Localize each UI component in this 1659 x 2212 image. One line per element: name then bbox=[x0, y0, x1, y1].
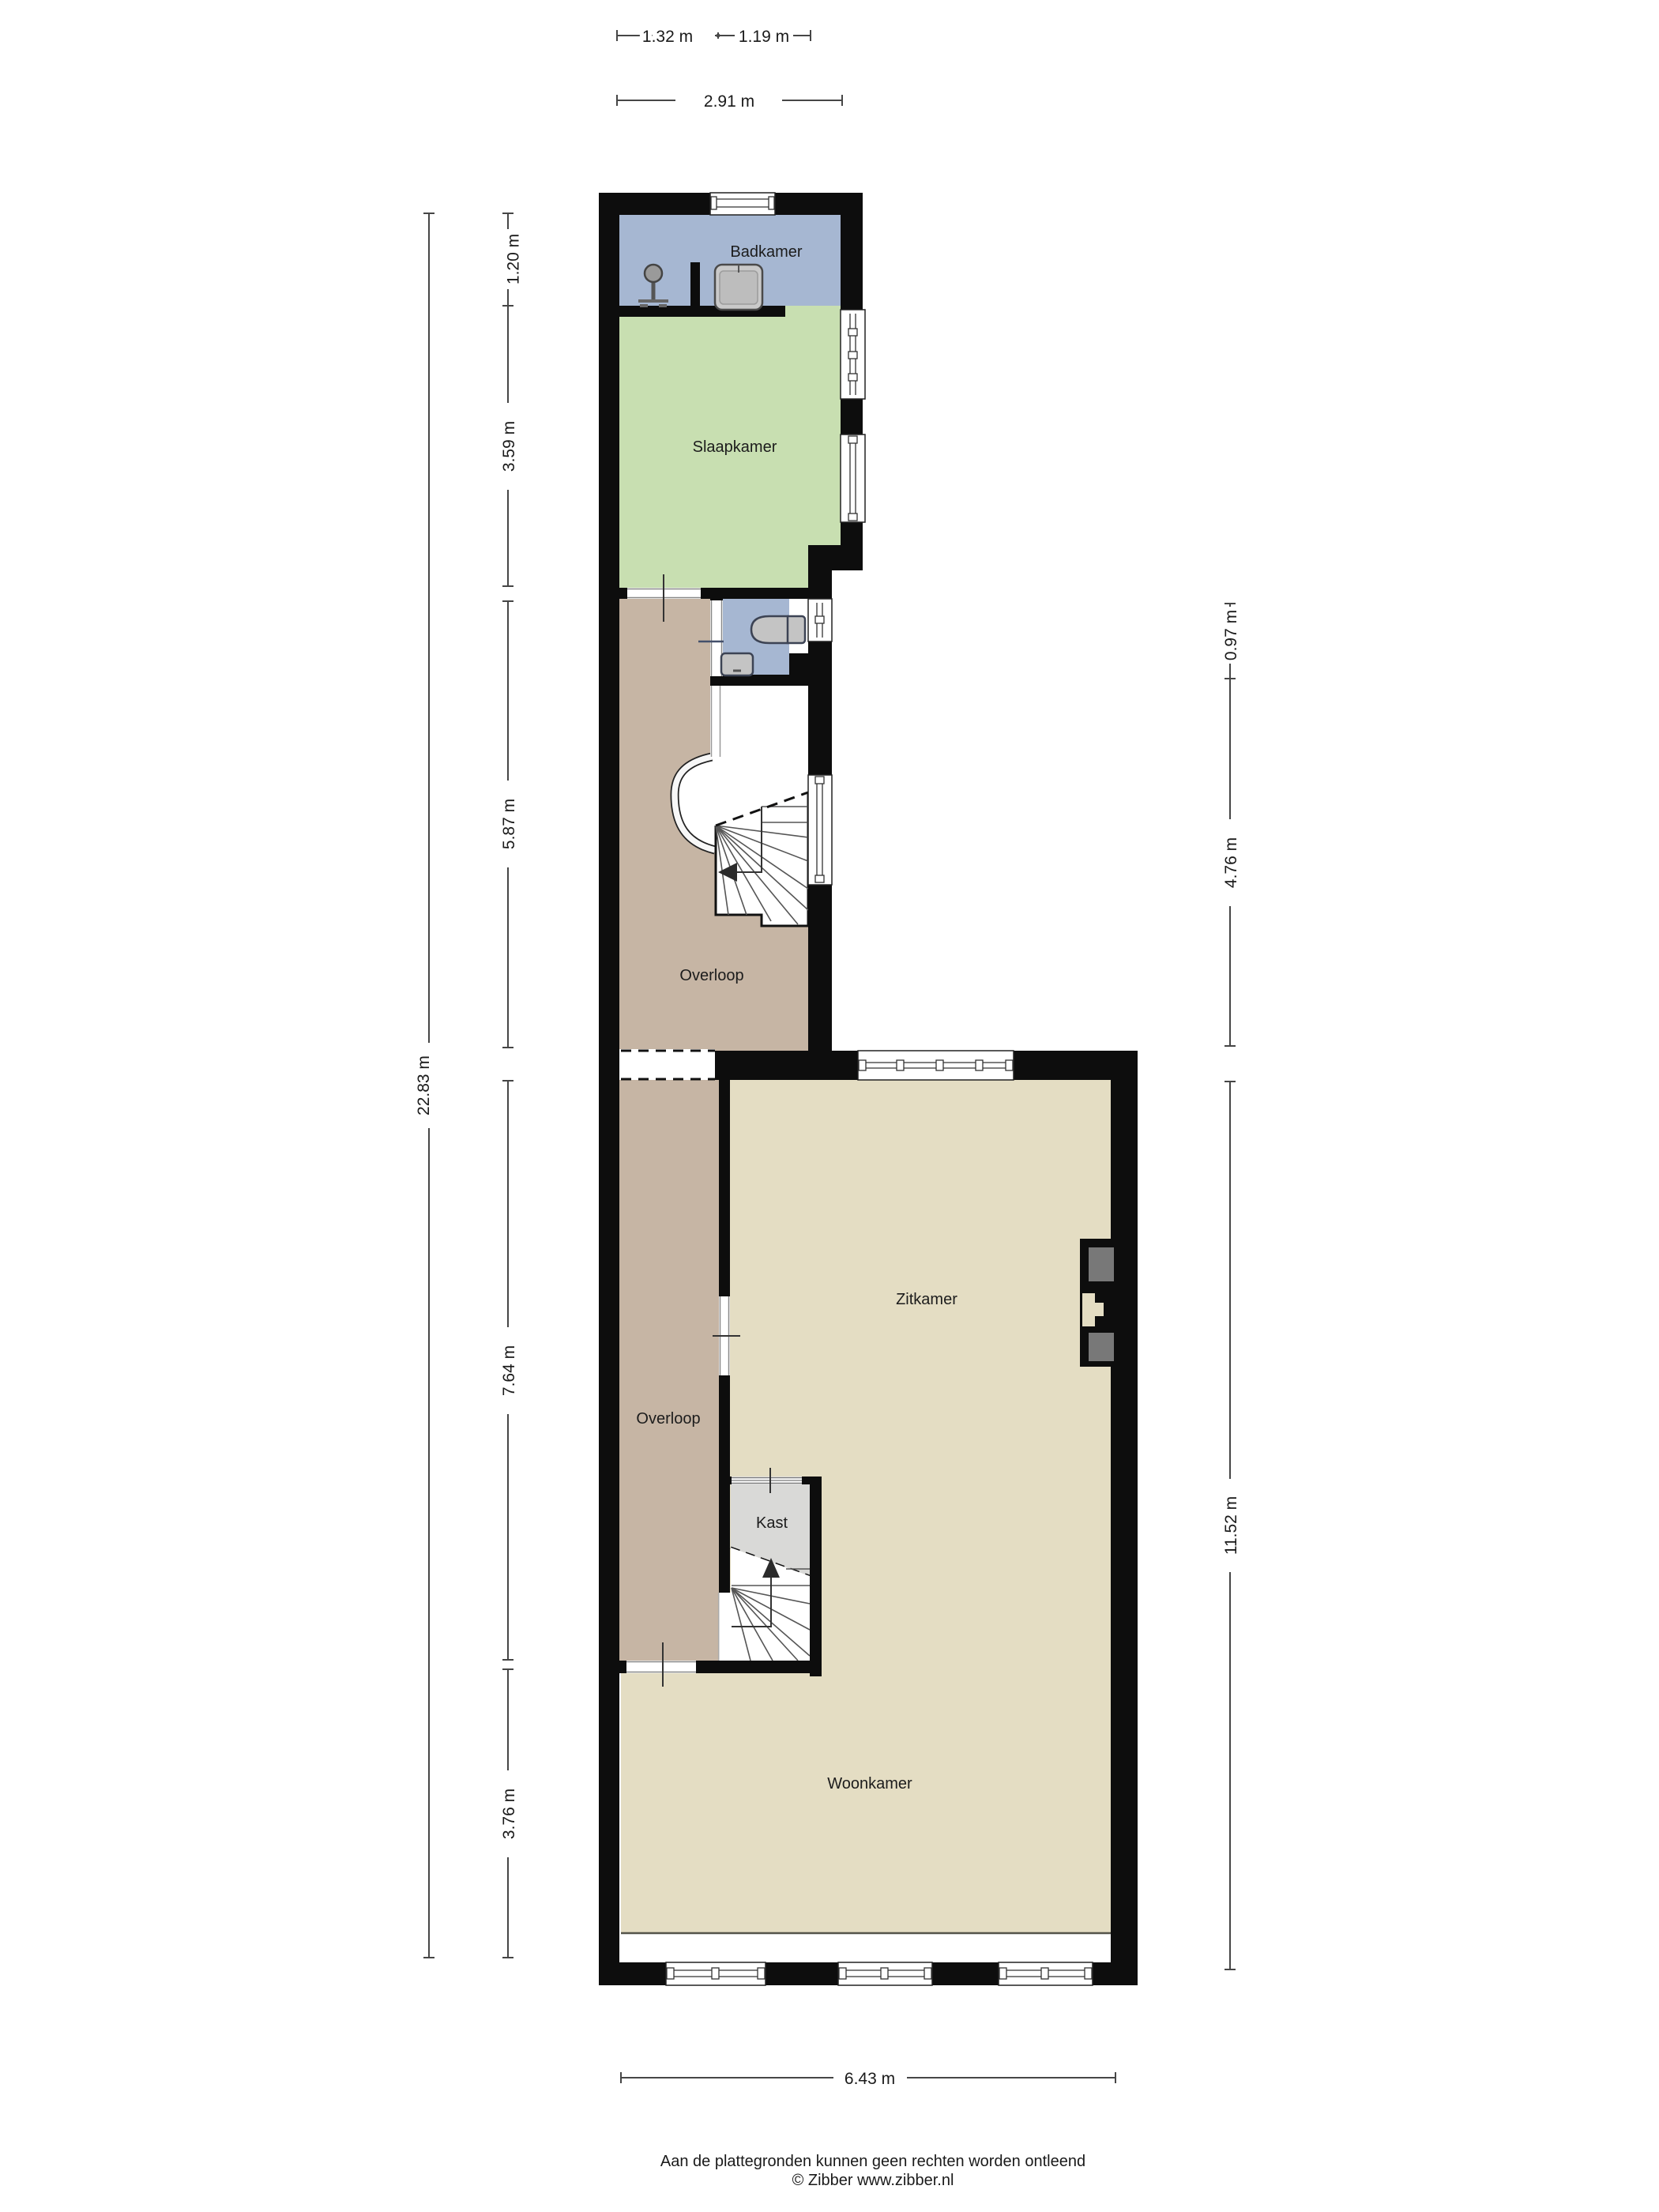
svg-text:Overloop: Overloop bbox=[679, 967, 743, 984]
svg-text:© Zibber www.zibber.nl: © Zibber www.zibber.nl bbox=[792, 2172, 954, 2189]
svg-text:Badkamer: Badkamer bbox=[730, 243, 802, 261]
svg-text:22.83 m: 22.83 m bbox=[415, 1055, 433, 1115]
svg-text:Aan de plattegronden kunnen ge: Aan de plattegronden kunnen geen rechten… bbox=[660, 2153, 1085, 2170]
svg-text:4.76 m: 4.76 m bbox=[1222, 837, 1240, 888]
svg-text:1.19 m: 1.19 m bbox=[739, 28, 789, 46]
svg-text:11.52 m: 11.52 m bbox=[1222, 1496, 1240, 1555]
svg-text:Overloop: Overloop bbox=[636, 1410, 700, 1428]
svg-text:0.97 m: 0.97 m bbox=[1222, 610, 1240, 660]
svg-text:7.64 m: 7.64 m bbox=[500, 1345, 518, 1396]
svg-text:Woonkamer: Woonkamer bbox=[827, 1775, 912, 1793]
svg-text:1.20 m: 1.20 m bbox=[505, 234, 523, 284]
svg-text:2.91 m: 2.91 m bbox=[704, 92, 754, 111]
svg-text:3.59 m: 3.59 m bbox=[500, 421, 518, 472]
svg-text:6.43 m: 6.43 m bbox=[845, 2070, 895, 2088]
svg-text:3.76 m: 3.76 m bbox=[500, 1789, 518, 1839]
svg-text:5.87 m: 5.87 m bbox=[500, 799, 518, 849]
svg-text:1.32 m: 1.32 m bbox=[642, 28, 693, 46]
svg-text:Zitkamer: Zitkamer bbox=[896, 1291, 957, 1308]
svg-text:Slaapkamer: Slaapkamer bbox=[693, 438, 777, 456]
svg-text:Kast: Kast bbox=[756, 1514, 788, 1532]
